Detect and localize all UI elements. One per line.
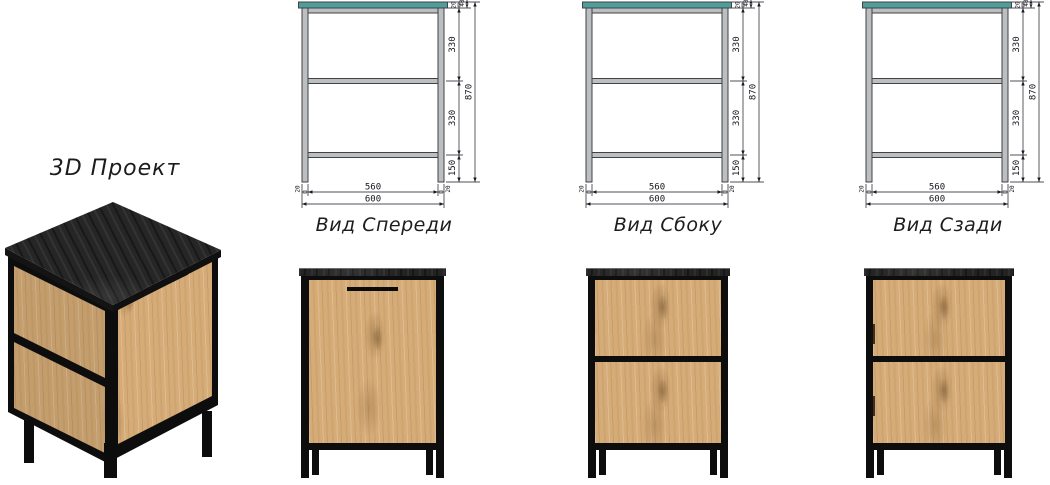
render-frame [588,276,728,450]
render-leg [710,450,717,475]
dim-lower-section: 330 [732,110,742,126]
render-back [866,268,1012,478]
render-frame [866,276,1012,450]
render-top-slab [586,268,730,276]
frame-geometry [863,2,1012,182]
render-leg [301,450,309,478]
render-leg [426,450,433,475]
dim-top-section: 40 [743,0,750,7]
front-door-panel [309,280,436,443]
render-frame [301,276,444,450]
back-panel-upper [873,280,1005,356]
dim-top-section: 40 [459,0,466,7]
dim-total-height: 870 [749,84,759,100]
render-top-slab [864,268,1014,276]
dim-top-thickness: 20 [735,1,742,9]
render-leg [436,450,444,478]
dim-total-width: 600 [929,195,945,205]
dim-inner-width: 560 [365,183,381,193]
dim-top-thickness: 20 [451,1,458,9]
frame-geometry [583,2,732,182]
render-leg [877,450,884,475]
dim-upper-section: 330 [732,36,742,52]
3d-leg-back-left [24,419,34,463]
3d-leg-front [104,443,117,478]
hinge-mark [871,324,875,344]
view-column-back: 330 330 150 870 20 40 560 600 20 20 Вид … [842,0,1050,485]
dim-total-height: 870 [1029,84,1039,100]
render-leg [720,450,728,478]
dim-top-section: 40 [1023,0,1030,7]
view-column-side: 330 330 150 870 20 40 560 600 20 20 Вид … [562,0,774,485]
view-column-front: 330 330 150 870 20 40 560 600 20 20 Вид … [278,0,490,485]
dim-leg-right: 20 [445,185,452,193]
door-handle [347,287,398,291]
dim-leg-height: 150 [732,160,742,176]
tech-drawing-front: 330 330 150 870 20 40 560 600 20 20 [278,0,490,212]
tech-drawing-back: 330 330 150 870 20 40 560 600 20 20 [842,0,1050,212]
dim-total-height: 870 [465,84,475,100]
countertop [299,2,448,8]
dim-leg-height: 150 [1012,160,1022,176]
drawing-sheet: 3D Проект 330 33 [0,0,1050,485]
view-label-side: Вид Сбоку [562,214,774,236]
view-label-back: Вид Сзади [842,214,1050,236]
frame-geometry [299,2,448,182]
back-panel-lower [873,362,1005,443]
dim-leg-left: 20 [859,185,866,193]
dim-upper-section: 330 [1012,36,1022,52]
dim-inner-width: 560 [649,183,665,193]
tech-drawing-side: 330 330 150 870 20 40 560 600 20 20 [562,0,774,212]
dim-leg-left: 20 [295,185,302,193]
render-side [588,268,728,478]
dim-leg-right: 20 [1009,185,1016,193]
render-leg [994,450,1001,475]
render-front [301,268,444,478]
render-top-slab [299,268,446,276]
dim-lower-section: 330 [1012,110,1022,126]
render-leg [312,450,319,475]
render-leg [599,450,606,475]
project-3d-label: 3D Проект [30,156,200,181]
cabinet-3d-view [0,195,240,485]
dim-lower-section: 330 [448,110,458,126]
dim-leg-right: 20 [729,185,736,193]
dim-total-width: 600 [365,195,381,205]
dim-inner-width: 560 [929,183,945,193]
countertop [863,2,1012,8]
dim-top-thickness: 20 [1015,1,1022,9]
render-leg [1004,450,1012,478]
hinge-mark [871,396,875,416]
render-leg [866,450,874,478]
3d-leg-back-right [202,411,212,457]
dim-upper-section: 330 [448,36,458,52]
countertop [583,2,732,8]
side-panel-lower [595,362,721,443]
dim-leg-left: 20 [579,185,586,193]
dim-total-width: 600 [649,195,665,205]
view-label-front: Вид Спереди [278,214,490,236]
side-panel-upper [595,280,721,356]
render-leg [588,450,596,478]
dim-leg-height: 150 [448,160,458,176]
